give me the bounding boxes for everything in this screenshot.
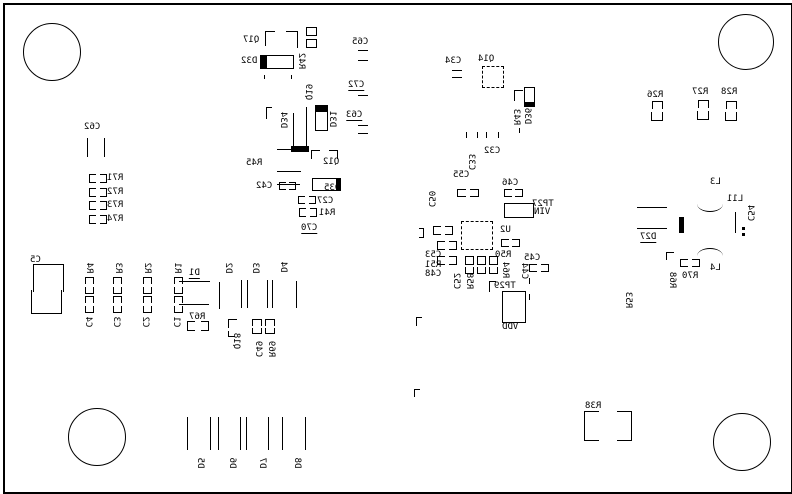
ref-label-d27: D27 (640, 232, 656, 243)
component-pad (489, 267, 498, 274)
component-pad (266, 55, 294, 69)
ref-label-c72: C72 (348, 80, 364, 91)
component-pad (143, 277, 152, 284)
component-pad (437, 256, 445, 265)
component-pad (515, 189, 523, 197)
ref-label-c34: C34 (445, 56, 461, 66)
polarity-mark (260, 55, 266, 69)
ref-label-r74: R74 (107, 214, 123, 224)
component-pad (113, 287, 122, 294)
ref-label-c50: C50 (425, 187, 437, 211)
component-pad (228, 319, 237, 328)
component-pad (85, 277, 94, 284)
ref-label-d3: D3 (249, 256, 261, 280)
silkscreen-line (277, 171, 301, 172)
component-pad (477, 267, 486, 274)
silkscreen-line (452, 77, 462, 78)
component-pad (651, 112, 663, 121)
ref-label-c54: C54 (744, 201, 756, 225)
polarity-mark (336, 178, 341, 191)
ref-label-c70: C70 (301, 223, 317, 234)
silkscreen-line (210, 417, 211, 450)
component-pad (252, 328, 262, 334)
component-pad (306, 39, 317, 48)
ref-label-c3: C3 (110, 310, 122, 334)
ref-label-u2: U2 (500, 225, 511, 235)
component-pad (187, 321, 195, 331)
component-pad (692, 259, 700, 267)
silkscreen-line (272, 280, 273, 308)
component-pad (489, 256, 498, 265)
component-pad (143, 296, 152, 303)
component-pad (298, 196, 305, 204)
component-pad (309, 196, 316, 204)
silkscreen-line (306, 107, 307, 148)
component-pad (310, 208, 317, 217)
ref-label-r72: R72 (107, 187, 123, 197)
ref-label-r68: R68 (666, 268, 678, 292)
ref-label-c55: C55 (453, 170, 469, 180)
ref-label-l3: L3 (710, 177, 721, 187)
component-pad (312, 178, 337, 191)
component-pad (174, 306, 183, 313)
component-pad (502, 291, 526, 323)
component-pad (311, 150, 320, 159)
ref-label-c1: C1 (170, 310, 182, 334)
ref-label-d34: D34 (277, 108, 289, 132)
silkscreen-line (241, 280, 242, 308)
component-pad (100, 188, 107, 197)
component-pad (306, 27, 317, 36)
silkscreen-line (358, 50, 368, 51)
ref-label-vdd: VDD (502, 322, 518, 332)
component-pad (445, 226, 453, 235)
silkscreen-line (87, 138, 88, 157)
ref-label-r70: R70 (682, 271, 698, 281)
silkscreen-line (267, 280, 268, 308)
ref-label-c49: C49 (252, 337, 264, 361)
ref-label-r69: R69 (265, 337, 277, 361)
component-pad (666, 252, 674, 260)
component-pad (113, 296, 122, 303)
component-pad (726, 101, 737, 109)
ref-label-c46: C46 (502, 178, 518, 188)
component-pad (437, 241, 445, 250)
component-pad (584, 411, 599, 441)
silkscreen-line (637, 207, 667, 208)
silkscreen-line (452, 70, 462, 71)
component-pad (174, 296, 183, 303)
silkscreen-line (486, 132, 487, 138)
silkscreen-line (358, 60, 368, 61)
silkscreen-line (268, 417, 269, 450)
component-pad (33, 264, 64, 292)
ref-label-r42: R42 (295, 49, 307, 73)
ref-label-c42: C42 (256, 181, 272, 191)
component-pad (680, 259, 688, 267)
ref-label-r71: R71 (107, 173, 123, 183)
silkscreen-line (179, 304, 209, 305)
component-pad (470, 189, 479, 197)
component-pad (698, 100, 709, 108)
silkscreen-line (477, 132, 478, 138)
ref-label-q17: Q17 (243, 35, 259, 45)
component-pad (504, 203, 534, 218)
ref-label-r27: R27 (692, 87, 708, 97)
component-pad (89, 215, 96, 224)
component-pad (228, 331, 235, 337)
ref-label-d7: D7 (256, 451, 268, 475)
component-pad (416, 317, 422, 326)
component-pad (266, 107, 272, 119)
silkscreen-line (637, 228, 667, 229)
component-pad (252, 319, 262, 326)
silkscreen-line (277, 184, 300, 185)
polarity-mark (742, 227, 745, 230)
ref-label-d5: D5 (194, 451, 206, 475)
mounting-hole (23, 23, 81, 81)
ref-label-c32: C32 (484, 146, 500, 156)
ref-label-d8: D8 (291, 451, 303, 475)
ref-label-r45: R45 (246, 158, 262, 168)
component-pad (100, 215, 107, 224)
ref-label-c52: C52 (450, 269, 462, 293)
component-pad (100, 174, 107, 183)
silkscreen-line (282, 417, 283, 450)
component-pad (697, 111, 709, 120)
silkscreen-line (305, 417, 306, 450)
ref-label-c2: C2 (139, 310, 151, 334)
silkscreen-line (219, 282, 220, 309)
component-pad (89, 174, 96, 183)
component-pad (529, 264, 537, 272)
ref-label-d1: D1 (189, 268, 200, 279)
ref-label-d2: D2 (222, 256, 234, 280)
silkscreen-line (466, 132, 467, 138)
component-pad (501, 239, 509, 247)
component-pad (465, 267, 474, 274)
component-outline-dashed (461, 221, 493, 250)
component-pad (419, 228, 424, 238)
ref-label-c48: C48 (425, 269, 441, 279)
ref-label-d32: D32 (241, 56, 257, 66)
ref-label-q14: Q14 (478, 54, 494, 64)
silkscreen-line (240, 417, 241, 450)
silkscreen-line (529, 294, 530, 300)
mounting-hole (718, 14, 774, 70)
ref-label-l4: L4 (710, 263, 721, 273)
ref-label-c4: C4 (82, 310, 94, 334)
component-pad (489, 281, 496, 292)
ref-label-r73: R73 (107, 200, 123, 210)
component-pad (113, 277, 122, 284)
component-pad (433, 226, 441, 235)
component-pad (85, 287, 94, 294)
component-pad (414, 389, 420, 397)
silkscreen-line (519, 128, 520, 133)
silkscreen-line (358, 95, 368, 96)
component-pad (265, 31, 275, 46)
polarity-mark (679, 217, 684, 233)
ref-label-r41: R41 (319, 208, 335, 218)
silkscreen-line (358, 133, 368, 134)
silkscreen-line (264, 75, 265, 79)
component-pad (477, 256, 486, 265)
silkscreen-line (179, 281, 210, 282)
ref-label-d6: D6 (226, 451, 238, 475)
component-pad (514, 90, 523, 101)
component-pad (201, 321, 209, 331)
ref-label-r28: R28 (721, 87, 737, 97)
silkscreen-line (498, 132, 499, 138)
component-pad (512, 239, 520, 247)
component-pad (541, 264, 549, 272)
silkscreen-line (358, 125, 368, 126)
mounting-hole (713, 413, 771, 471)
silkscreen-line (296, 281, 297, 308)
ref-label-c27: C27 (317, 196, 333, 206)
component-pad (113, 306, 122, 313)
component-outline-dashed (482, 66, 504, 88)
component-pad (89, 201, 96, 210)
component-pad (31, 290, 62, 314)
ref-label-tp29: TP29 (494, 281, 516, 291)
component-pad (299, 208, 306, 217)
silkscreen-line (104, 138, 105, 157)
ref-label-r64: R64 (499, 258, 511, 282)
component-pad (265, 328, 275, 334)
component-pad (265, 319, 275, 326)
silkscreen-line (293, 113, 294, 148)
polarity-mark (524, 102, 535, 107)
component-pad (89, 188, 96, 197)
component-pad (504, 189, 512, 197)
component-pad (143, 306, 152, 313)
silkscreen-line (277, 149, 301, 150)
component-pad (286, 31, 298, 48)
ref-label-q19: Q19 (302, 80, 314, 104)
component-pad (449, 241, 457, 250)
component-pad (457, 189, 466, 197)
component-pad (465, 256, 474, 265)
polarity-mark (315, 105, 328, 111)
ref-label-l11: L11 (727, 194, 743, 204)
polarity-mark (742, 233, 745, 236)
component-pad (174, 287, 183, 294)
silkscreen-line (187, 417, 188, 450)
silkscreen-line (246, 417, 247, 450)
component-pad (85, 306, 94, 313)
component-pad (85, 296, 94, 303)
ref-label-r26: R26 (647, 90, 663, 100)
component-pad (100, 201, 107, 210)
pcb-board: Q17D32R42Q19D34D31C65C72C63R45Q12D35C42C… (0, 0, 792, 494)
ref-label-c62: C62 (84, 122, 100, 132)
component-pad (652, 101, 663, 109)
silkscreen-line (529, 278, 530, 284)
component-pad (449, 256, 457, 265)
ref-label-r53: R53 (622, 288, 634, 312)
ref-label-d36: D36 (521, 104, 533, 128)
component-pad (329, 150, 338, 159)
component-pad (617, 411, 632, 441)
silkscreen-line (218, 417, 219, 450)
silkscreen-line (291, 75, 292, 79)
ref-label-vin: VIN (534, 207, 550, 217)
component-pad (143, 287, 152, 294)
ref-label-c65: C65 (352, 37, 368, 47)
component-pad (315, 111, 328, 131)
ref-label-r38: R38 (585, 401, 601, 411)
component-pad (725, 112, 737, 121)
mounting-hole (68, 408, 126, 466)
silkscreen-line (247, 280, 248, 308)
silkscreen-line (735, 212, 736, 233)
ref-label-c63: C63 (346, 110, 362, 121)
ref-label-d4: D4 (277, 255, 289, 279)
